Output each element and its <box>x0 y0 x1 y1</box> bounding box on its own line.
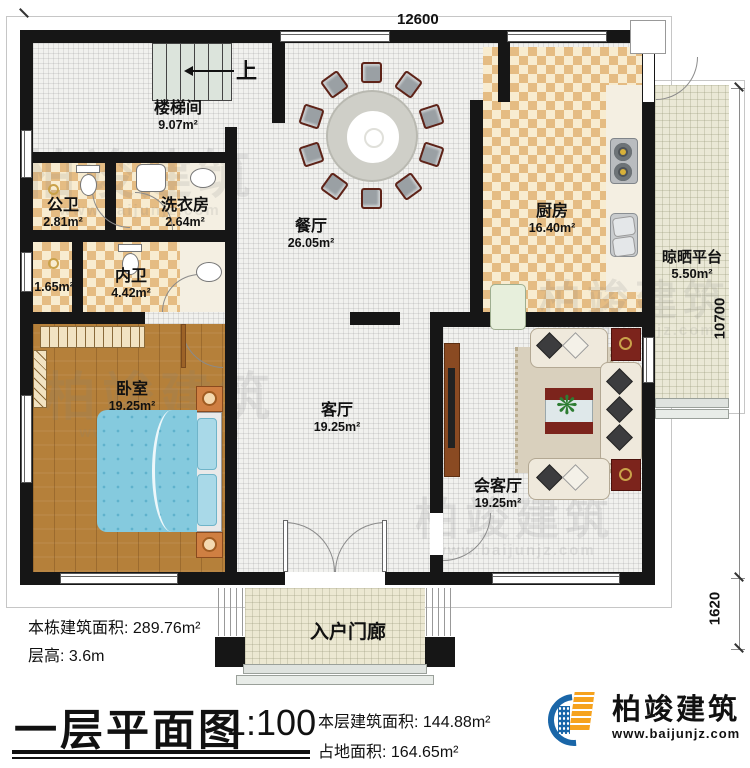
room-area: 4.42m² <box>99 286 163 300</box>
window <box>492 573 620 584</box>
window <box>60 573 178 584</box>
wall <box>33 230 228 242</box>
kitchen-counter <box>606 85 642 292</box>
wall <box>430 555 443 572</box>
stairs-up-arrow-head <box>184 66 193 76</box>
platform-step <box>655 398 729 408</box>
wall <box>443 312 655 327</box>
flue-box <box>630 20 666 54</box>
room-name: 厨房 <box>512 203 592 221</box>
bathroom-sink <box>196 262 222 282</box>
drawing-scale: 1:100 <box>226 702 316 744</box>
drying-platform-floor <box>655 85 729 398</box>
room-name: 卧室 <box>93 381 171 399</box>
room-name: 洗衣房 <box>140 197 230 215</box>
toilet-bowl <box>80 174 97 196</box>
burner-knob <box>620 149 626 155</box>
room-name: 晾晒平台 <box>650 250 734 267</box>
room-area: 5.50m² <box>650 267 734 282</box>
wardrobe <box>40 326 145 348</box>
room-label-dining: 餐厅 26.05m² <box>273 218 349 250</box>
building-total-area-note: 本栋建筑面积: 289.76m² <box>28 614 201 638</box>
window <box>280 31 390 42</box>
wall <box>20 30 33 585</box>
dimension-line <box>739 88 740 650</box>
floor-area-note: 本层建筑面积: 144.88m² <box>318 708 491 732</box>
kitchen-platform-opening <box>643 50 654 102</box>
room-area: 19.25m² <box>459 496 537 510</box>
brand-name: 柏竣建筑 <box>612 686 740 728</box>
room-area: 2.64m² <box>140 215 230 229</box>
refrigerator <box>490 284 526 330</box>
wall <box>72 242 83 312</box>
coffee-table-edge <box>545 422 593 434</box>
brand-website: www.baijunjz.com <box>612 726 740 741</box>
washing-machine <box>136 164 166 192</box>
light-fixture <box>48 184 59 195</box>
wall <box>642 30 655 585</box>
room-name: 公卫 <box>31 197 95 215</box>
room-name: 楼梯间 <box>123 100 233 118</box>
entry-door-leaf <box>283 520 288 572</box>
room-name: 会客厅 <box>459 478 537 496</box>
brand-logo: 柏竣建筑 www.baijunjz.com <box>548 684 744 762</box>
window <box>21 130 32 178</box>
room-area: 26.05m² <box>273 236 349 250</box>
room-name: 内卫 <box>99 268 163 286</box>
room-label-drying-platform: 晾晒平台 5.50m² <box>650 250 734 281</box>
wall <box>470 100 483 312</box>
room-area: 9.07m² <box>123 118 233 132</box>
dimension-top: 12600 <box>397 11 439 28</box>
porch-column <box>215 637 245 667</box>
corner-table-decor <box>619 468 632 481</box>
porch-railing <box>426 588 452 636</box>
bedroom-door-leaf <box>181 324 186 368</box>
room-label-public-wc: 公卫 2.81m² <box>31 197 95 229</box>
porch-column <box>425 637 455 667</box>
land-area-note: 占地面积: 164.65m² <box>318 738 459 762</box>
window <box>21 395 32 483</box>
dimension-bottom-right: 1620 <box>707 587 724 631</box>
room-area: 19.25m² <box>299 420 375 434</box>
stairs-up-label: 上 <box>236 55 257 85</box>
sink-basin <box>612 216 636 238</box>
wall <box>33 312 145 324</box>
room-label-kitchen: 厨房 16.40m² <box>512 203 592 235</box>
pillow <box>197 418 217 470</box>
entry-door-leaf <box>382 520 387 572</box>
room-label-living: 客厅 19.25m² <box>299 402 375 434</box>
reception-opening <box>430 513 443 555</box>
room-name: 客厅 <box>299 402 375 420</box>
room-label-bedroom: 卧室 19.25m² <box>93 381 171 413</box>
room-label-stairwell: 楼梯间 9.07m² <box>123 100 233 132</box>
room-label-private-wc: 内卫 4.42m² <box>99 268 163 300</box>
stairs-up-arrow-line <box>192 70 234 72</box>
room-label-laundry: 洗衣房 2.64m² <box>140 197 230 229</box>
wall <box>225 127 237 572</box>
dimension-right: 10700 <box>712 295 729 343</box>
floor-plan-canvas: 柏竣建筑 www.baijunjz.com 柏竣建筑 www.baijunjz.… <box>0 0 750 768</box>
wall <box>430 312 443 513</box>
plant-icon: ❋ <box>556 392 578 418</box>
lamp <box>202 537 217 552</box>
sink-basin <box>612 236 636 258</box>
wall <box>350 312 400 325</box>
floor-height-note: 层高: 3.6m <box>28 642 104 666</box>
room-label-closet: 1.65m² <box>28 280 80 294</box>
toilet-tank <box>118 244 142 252</box>
burner-knob <box>620 169 626 175</box>
closet-shelf <box>33 350 47 408</box>
logo-building-icon <box>558 706 570 734</box>
window <box>507 31 607 42</box>
light-fixture <box>48 258 59 269</box>
corner-table-decor <box>619 337 632 350</box>
room-label-reception: 会客厅 19.25m² <box>459 478 537 510</box>
dining-table-center <box>364 128 384 148</box>
room-label-entrance-porch: 入户门廊 <box>300 622 396 643</box>
bed-fold <box>152 410 200 532</box>
laundry-sink <box>190 168 216 188</box>
platform-step <box>655 409 729 419</box>
title-underline <box>12 750 310 754</box>
wall <box>20 152 236 163</box>
room-area: 1.65m² <box>28 280 80 294</box>
window <box>643 337 654 383</box>
wall <box>272 43 285 123</box>
room-name: 餐厅 <box>273 218 349 236</box>
title-underline <box>12 757 310 759</box>
porch-railing <box>218 588 244 636</box>
room-name: 入户门廊 <box>300 622 396 643</box>
lamp <box>202 391 217 406</box>
room-area: 19.25m² <box>93 399 171 413</box>
tv <box>448 368 455 448</box>
dining-chair <box>361 62 382 83</box>
porch-step <box>236 675 434 685</box>
room-area: 2.81m² <box>31 215 95 229</box>
room-area: 16.40m² <box>512 221 592 235</box>
dining-chair <box>361 188 382 209</box>
porch-step <box>243 664 427 674</box>
toilet-tank <box>76 165 100 173</box>
entry-opening <box>285 572 385 585</box>
page-title: 一层平面图 <box>14 696 244 758</box>
pillow <box>197 474 217 526</box>
